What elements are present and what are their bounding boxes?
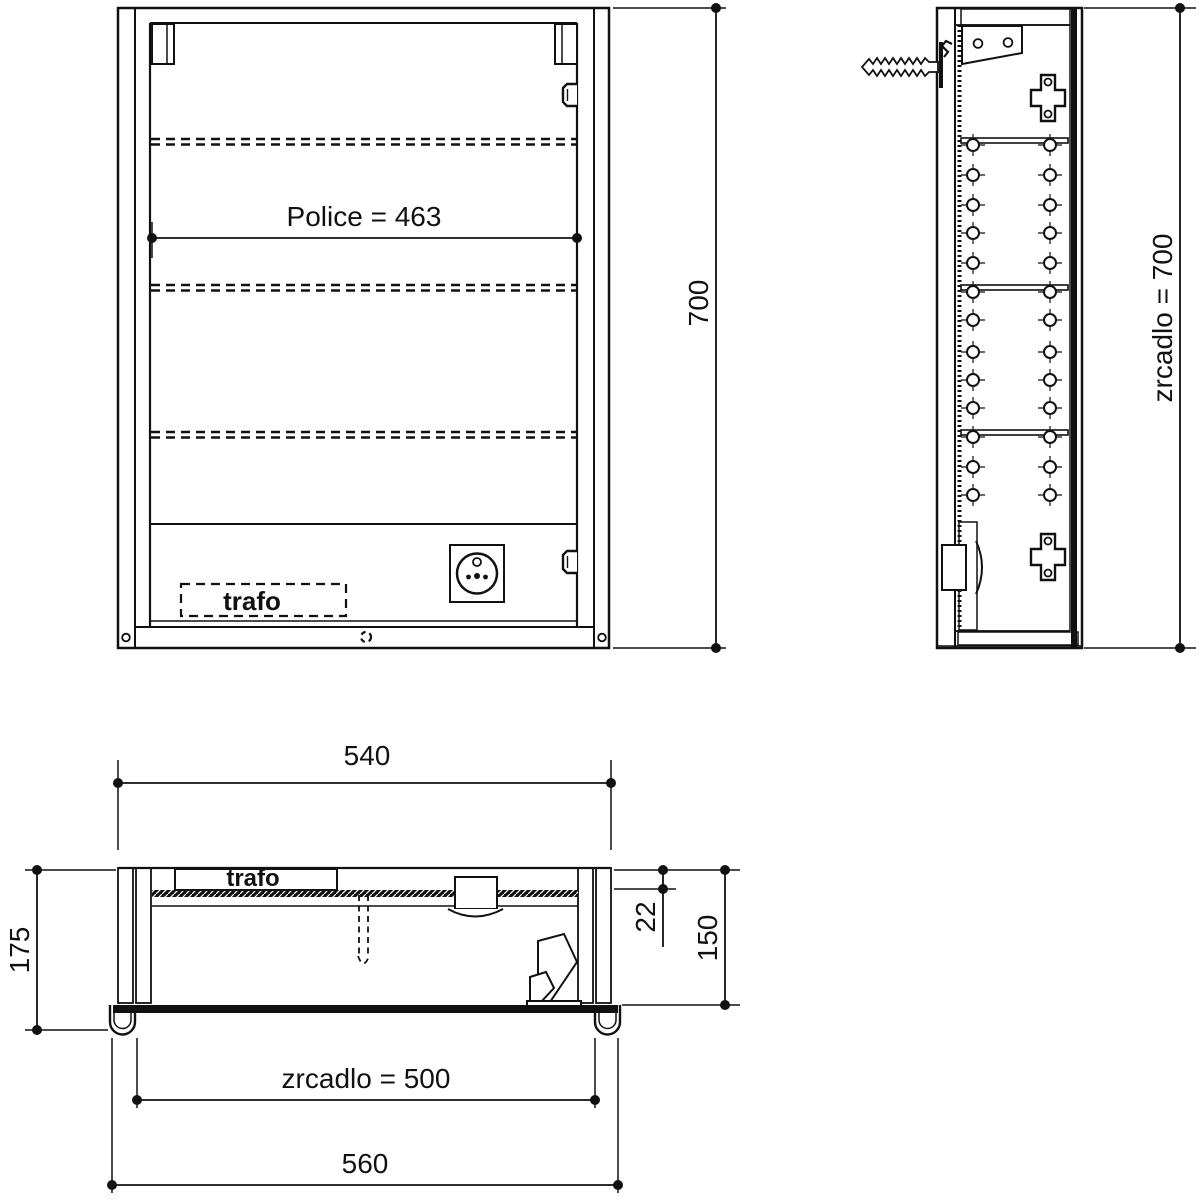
trafo-side <box>942 545 966 590</box>
depth-dimension-label: 175 <box>4 927 35 974</box>
socket-cover-flap <box>448 909 503 917</box>
front-view: Police = 463 trafo 700 <box>118 3 726 653</box>
inner-depth-dimension-150: 150 <box>622 865 740 1010</box>
trafo-label-front: trafo <box>223 586 281 616</box>
shelf-width-dimension-label: Police = 463 <box>287 201 442 232</box>
mirror-height-dimension-label: zrcadlo = 700 <box>1147 234 1178 403</box>
mirror-width-label: zrcadlo = 500 <box>282 1063 451 1094</box>
plan-view: 540 trafo <box>4 740 740 1193</box>
mirror-door-edge <box>1071 8 1077 648</box>
mirror-height-dimension: zrcadlo = 700 <box>1084 3 1196 653</box>
mirror-front-edge <box>113 1005 618 1013</box>
trafo-box-plan: trafo <box>175 865 337 892</box>
door-catch-top <box>563 84 577 106</box>
overall-width-dimension-560: 560 <box>107 1038 623 1193</box>
wall-anchor-screw <box>862 58 938 76</box>
power-socket-plan <box>448 877 503 917</box>
front-cabinet-outline <box>118 8 609 648</box>
overall-width-label: 560 <box>342 1148 389 1179</box>
inner-depth-label: 150 <box>692 915 723 962</box>
height-dimension-700: 700 <box>613 3 726 653</box>
door-hinge-top-left <box>152 24 174 64</box>
panel-thickness-label: 22 <box>630 901 661 932</box>
trafo-label-plan: trafo <box>226 865 279 892</box>
side-view: zrcadlo = 700 <box>862 3 1196 653</box>
wall-hook-plate <box>939 42 943 88</box>
door-hinge-top-right <box>555 24 577 64</box>
height-dimension-label: 700 <box>683 280 714 327</box>
width-dimension-label: 540 <box>344 740 391 771</box>
depth-dimension-175: 175 <box>4 865 116 1035</box>
power-socket <box>450 545 504 602</box>
stacked-glass-shelves <box>527 934 581 1007</box>
door-catch-bottom <box>563 551 577 573</box>
width-dimension-540: 540 <box>113 740 616 850</box>
back-rail-section <box>152 890 578 897</box>
mirror-width-dimension-500: zrcadlo = 500 <box>132 1038 600 1108</box>
cabinet-technical-drawing: Police = 463 trafo 700 <box>0 0 1200 1200</box>
